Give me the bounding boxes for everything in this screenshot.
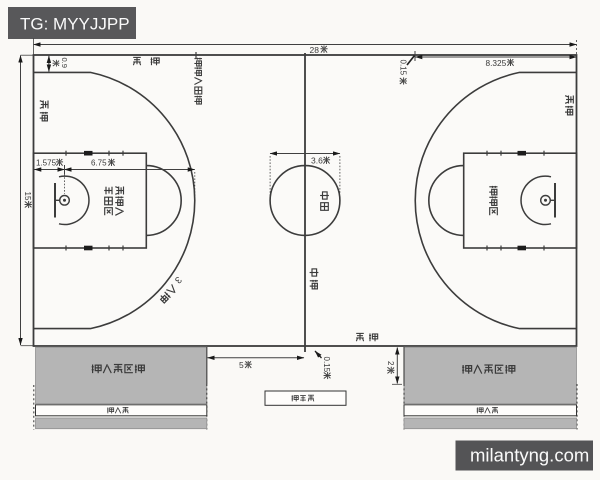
svg-text:6.75: 6.75 <box>91 159 107 168</box>
svg-text:TG: MYYJJPP: TG: MYYJJPP <box>20 15 130 34</box>
svg-text:3.6: 3.6 <box>311 156 323 166</box>
svg-text:2: 2 <box>386 361 395 366</box>
svg-text:5: 5 <box>239 360 244 370</box>
svg-text:8.325: 8.325 <box>486 58 507 68</box>
svg-text:milantyng.com: milantyng.com <box>470 445 589 466</box>
svg-text:0.15: 0.15 <box>322 357 331 373</box>
svg-text:0.9: 0.9 <box>60 58 69 68</box>
svg-text:0.15: 0.15 <box>399 60 408 76</box>
svg-text:1.575: 1.575 <box>36 159 57 168</box>
svg-text:15: 15 <box>23 192 32 201</box>
svg-text:28: 28 <box>310 45 320 55</box>
